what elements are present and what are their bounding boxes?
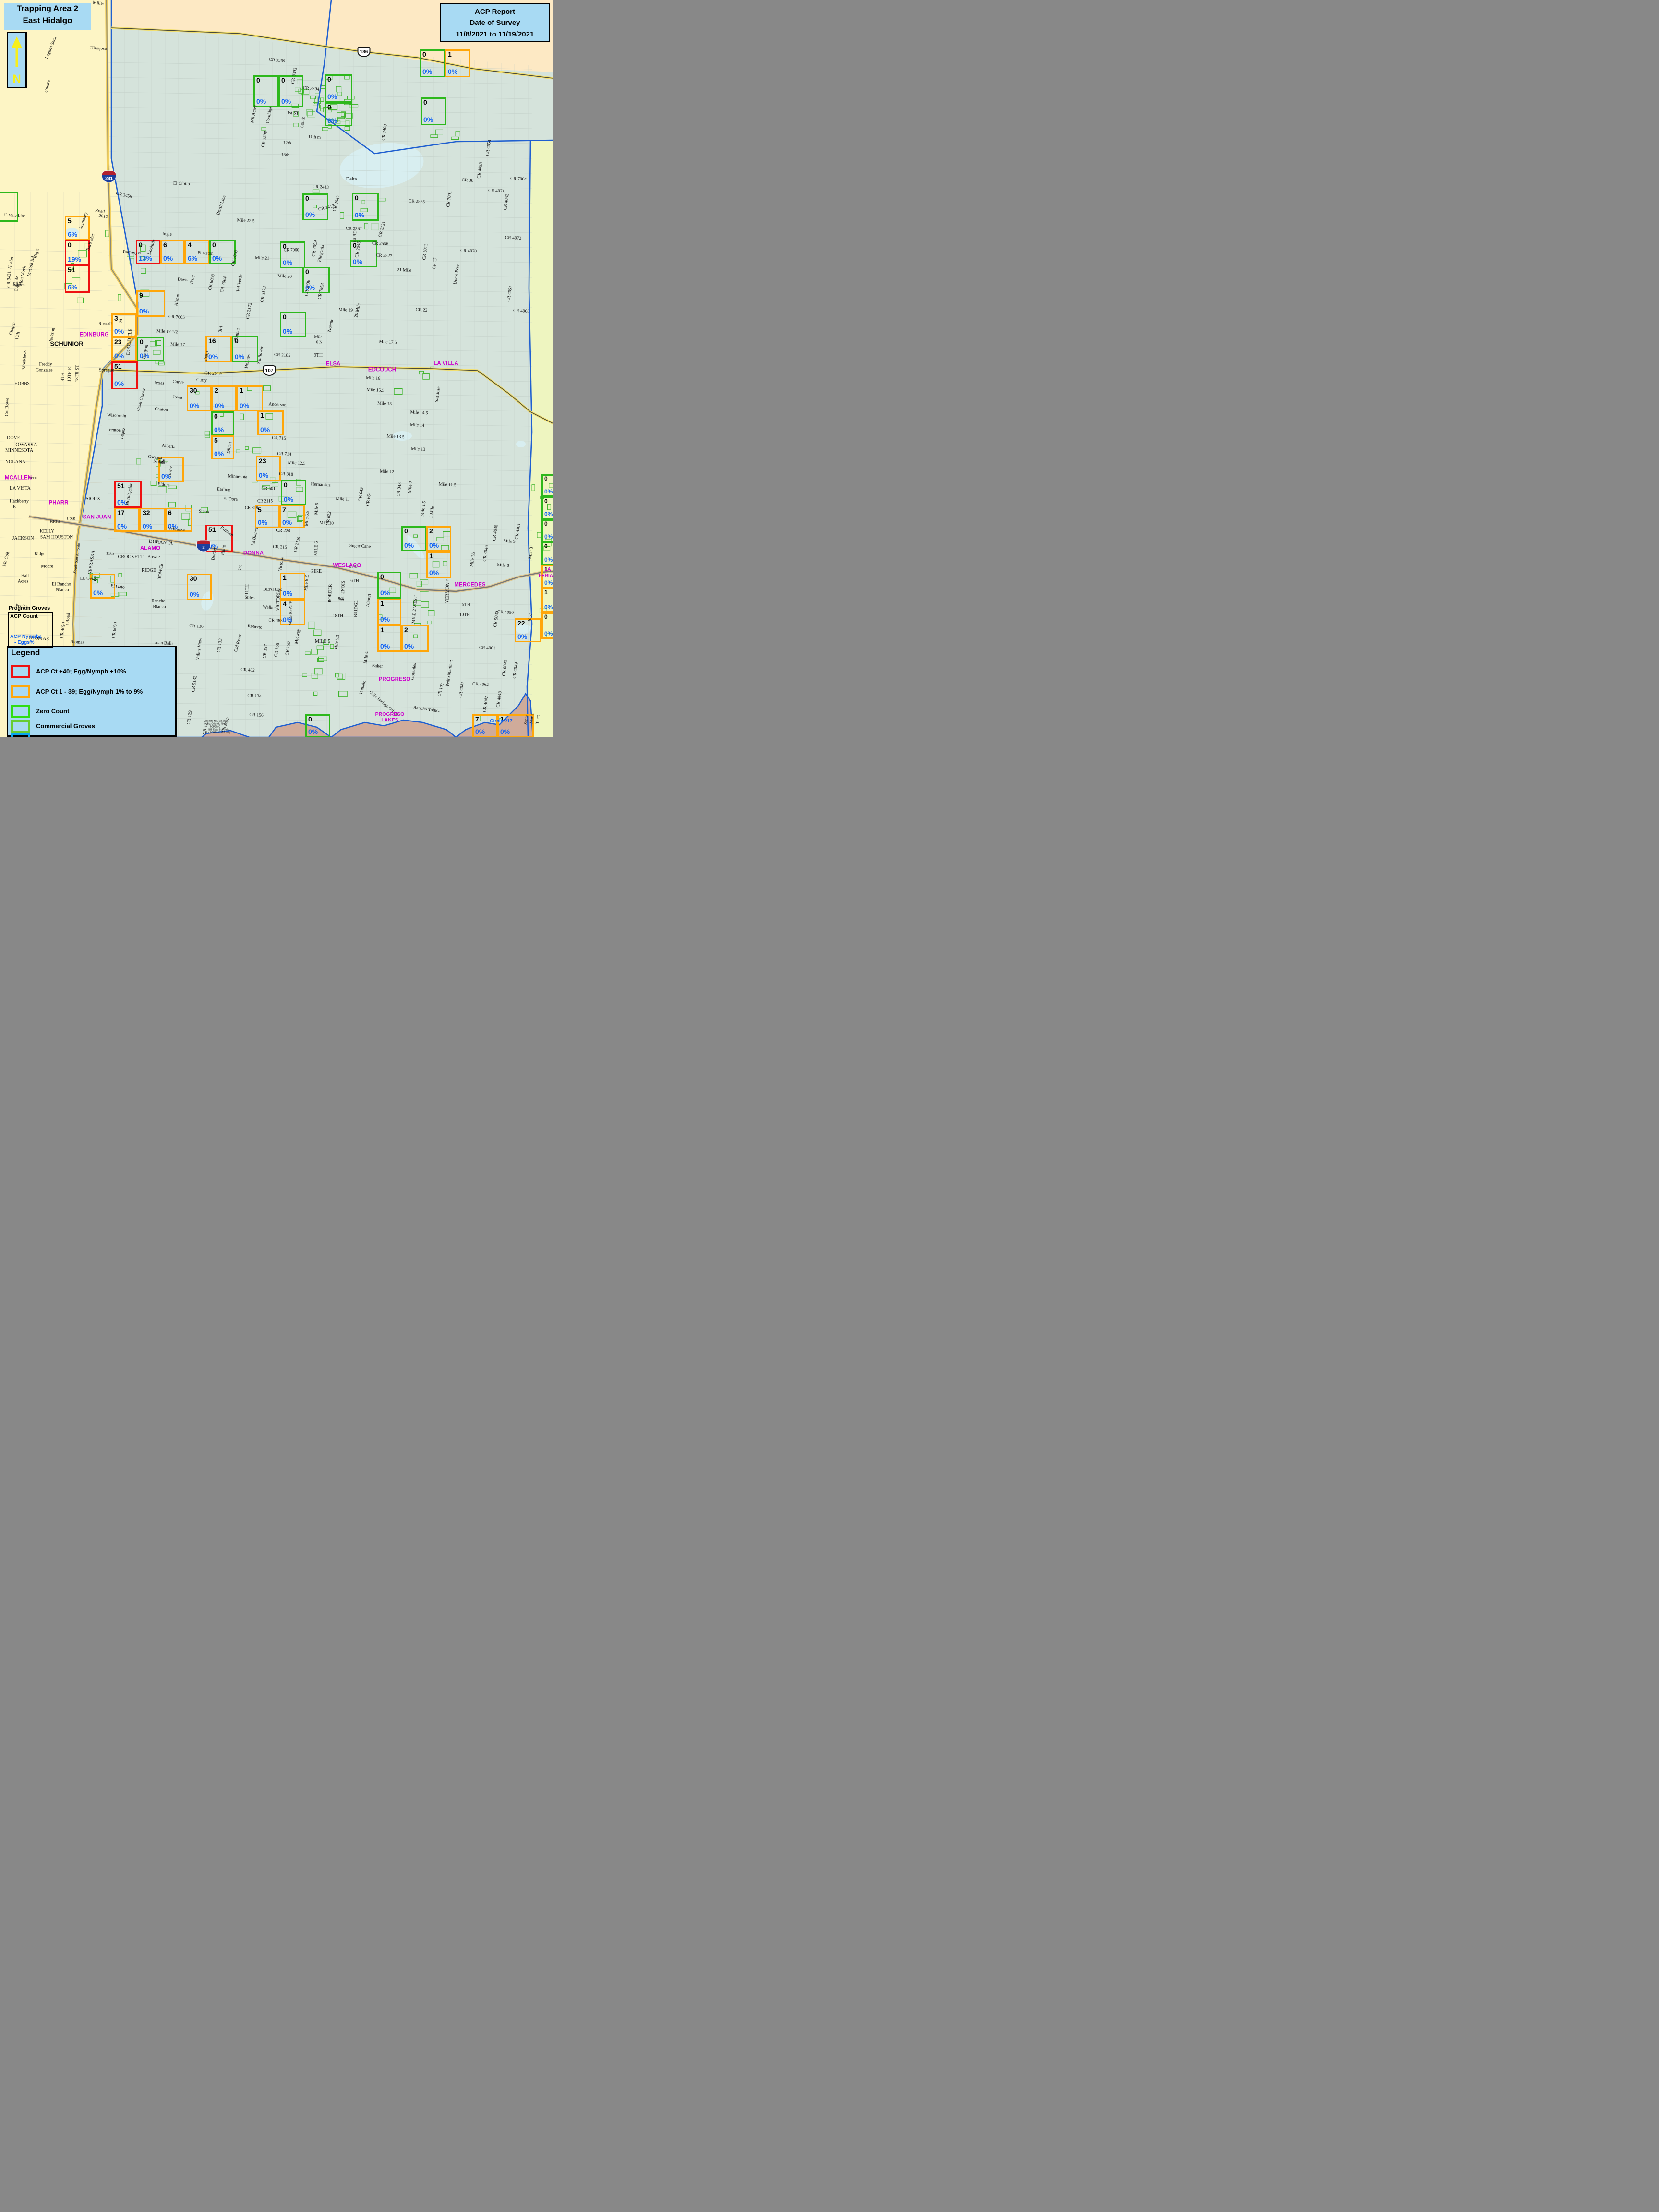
egg-nymph-percent: 0% (240, 402, 249, 409)
city-label: WESLACO (333, 563, 361, 569)
egg-nymph-percent: 0% (143, 523, 152, 530)
trap-site-box: 00% (281, 480, 306, 505)
road-label: Earling (217, 488, 230, 493)
egg-nymph-percent: 0% (190, 591, 199, 598)
trap-site-box: 00% (421, 97, 446, 125)
road-label: Pinkston (197, 251, 214, 256)
road-label: BELL (50, 520, 62, 525)
eggs-pct-label: - Eggs% (14, 639, 34, 645)
road-label: El Dora (223, 497, 238, 502)
egg-nymph-percent: 0% (305, 211, 315, 218)
egg-nymph-percent: 0% (544, 534, 553, 540)
trap-site-box: 00% (305, 714, 330, 737)
road-label: Col Rowe (5, 398, 11, 417)
road-label: Rancho (151, 599, 165, 604)
egg-nymph-percent: 0% (163, 255, 173, 262)
road-label: LA VISTA (10, 486, 31, 491)
road-label: Maria (529, 713, 535, 724)
road-label: 21 Mile (397, 268, 411, 273)
road-label: CR 215 (273, 545, 287, 550)
egg-nymph-percent: 0% (355, 212, 364, 219)
legend-label: Route Boundaries (36, 736, 90, 737)
egg-nymph-percent: 0% (256, 98, 266, 105)
road-label: Thomas (69, 640, 84, 646)
egg-nymph-percent: 0% (93, 589, 103, 597)
road-label: Hackberry (10, 499, 29, 504)
road-label: Russell (98, 322, 112, 327)
acp-count: 1 (380, 626, 384, 634)
road-label: JACKSON (12, 536, 34, 541)
road-label: Mile 15 (377, 401, 392, 407)
trap-site-box: 019% (65, 240, 90, 265)
trap-site-box: 30% (111, 313, 137, 337)
acp-count: 0 (423, 99, 427, 106)
trap-site-box: 00% (541, 474, 553, 497)
road-label: Hinojosa (90, 46, 107, 51)
road-label: Moore (41, 565, 53, 569)
egg-nymph-percent: 0% (282, 519, 292, 526)
interstate-shield-icon: 281 (102, 171, 116, 183)
egg-nymph-percent: 6% (68, 284, 77, 291)
acp-count: 17 (117, 509, 125, 517)
acp-count: 4 (283, 601, 287, 608)
legend-title: Legend (11, 648, 40, 658)
road-label: CR 4072 (505, 236, 522, 241)
egg-nymph-percent: 6% (68, 231, 77, 238)
city-label: PROGRESO (375, 712, 405, 717)
north-arrow: N (7, 32, 27, 88)
egg-nymph-percent: 0% (283, 328, 292, 335)
acp-count: 1 (429, 553, 433, 560)
road-label: EL GATO (80, 577, 99, 581)
egg-nymph-percent: 0% (544, 489, 553, 495)
city-label: EDCOUCH (368, 367, 396, 373)
acp-count: 51 (117, 482, 125, 490)
road-label: Stites (244, 596, 255, 601)
egg-nymph-percent: 0% (327, 117, 337, 124)
acp-count: 23 (259, 457, 266, 465)
egg-nymph-percent: 0% (215, 402, 224, 409)
acp-count: 0 (212, 241, 216, 249)
trap-site-box: 10% (541, 588, 553, 613)
road-label: Mile 11.5 (438, 482, 456, 488)
trap-site-box: 10% (377, 625, 401, 652)
trap-site-box: 10% (280, 573, 305, 599)
acp-count: 0 (380, 573, 384, 580)
acp-count: 0 (305, 268, 309, 276)
road-label: CR 4071 (488, 189, 505, 194)
egg-nymph-percent: 0% (544, 604, 553, 611)
road-label: 1st ST (287, 111, 299, 117)
water-body (516, 441, 526, 447)
road-label: 11th (106, 552, 114, 556)
road-label: CR 2185 (274, 353, 291, 358)
egg-nymph-percent: 0% (517, 633, 527, 640)
program-groves-key: ACP Count ACP Nymphs - Eggs% (8, 612, 53, 648)
road-label: Davis (178, 278, 189, 283)
acp-count: 5 (258, 506, 262, 514)
city-label: PROGRESO (379, 677, 410, 683)
acp-count: 0 (422, 51, 426, 58)
egg-nymph-percent: 0% (380, 643, 390, 650)
egg-nymph-percent: 0% (429, 569, 439, 577)
acp-count: 0 (355, 194, 359, 202)
acp-count: 4 (188, 241, 192, 249)
road-label: Baker (372, 664, 383, 670)
trap-site-box: 170% (114, 508, 140, 532)
trap-site-box: 20% (212, 385, 237, 411)
trap-site-box: 50% (255, 505, 279, 528)
acp-count: 0 (544, 476, 548, 482)
legend-label: ACP Ct +40; Egg/Nymph +10% (36, 668, 126, 675)
trap-site-box: 00% (541, 542, 553, 565)
report-subtitle: Date of Survey (441, 17, 549, 28)
road-label: 6 N (316, 340, 323, 345)
report-title: ACP Report (441, 6, 549, 17)
acp-count: 5 (68, 217, 72, 225)
road-label: CR 2556 (372, 241, 389, 247)
trap-site-box: 00% (280, 241, 305, 268)
acp-count: 1 (448, 51, 452, 58)
trap-site-box: 00% (253, 75, 278, 107)
road-label: Acres (18, 579, 28, 584)
road-label: Sprague (99, 368, 114, 373)
legend-swatch (11, 705, 30, 718)
interstate-shield-icon: 2 (196, 540, 211, 552)
road-label: Canton (155, 408, 168, 413)
road-label: MINNESOTA (5, 448, 33, 453)
road-label: Mile 13.5 (386, 434, 404, 440)
legend-label: Zero Count (36, 708, 69, 715)
road-label: 9TH (314, 353, 323, 358)
road-label: VERMONT (445, 579, 451, 603)
trap-site-box: 20% (401, 625, 429, 652)
road-label: 11th m (308, 135, 321, 141)
road-label: 10TH E (68, 367, 73, 382)
egg-nymph-percent: 0% (281, 98, 291, 105)
road-label: 18TH ST (75, 365, 81, 382)
trap-site-box: 320% (140, 508, 165, 532)
road-label: PIKE (311, 569, 322, 574)
trap-site-box: 00% (541, 519, 553, 542)
road-label: CR 715 (272, 436, 286, 441)
city-label: LA (544, 567, 551, 572)
road-label: Mile 17 (170, 342, 185, 348)
road-label: 1st (238, 565, 243, 571)
road-label: 4TH (61, 373, 66, 381)
city-label: EDINBURG (79, 332, 108, 338)
road-label: Mile 16 (366, 376, 380, 381)
egg-nymph-percent: 0% (214, 450, 224, 457)
acp-count: 51 (114, 363, 122, 370)
acp-count: 0 (327, 76, 331, 83)
trap-site-box: 70% (472, 714, 497, 737)
map-canvas: 00%00%00%00%00%10%00%00%00%00%00%00%00%5… (0, 0, 553, 737)
road-label: CR 7004 (510, 177, 527, 182)
trap-site-box: 00% (541, 497, 553, 519)
road-label: Mile 9 (503, 540, 516, 545)
egg-nymph-percent: 0% (284, 496, 293, 503)
report-date-range: 11/8/2021 to 11/19/2021 (441, 29, 549, 40)
acp-count: 0 (256, 77, 260, 84)
map-title: Trapping Area 2 East Hidalgo (4, 3, 91, 30)
egg-nymph-percent: 0% (308, 728, 318, 735)
road-label: Trenton (107, 428, 121, 433)
road-label: Blanco (56, 588, 69, 593)
road-label: CR 482 (240, 668, 255, 673)
acp-count: 9 (139, 292, 143, 299)
road-label: 12th (283, 141, 291, 146)
egg-nymph-percent: 0% (448, 68, 457, 75)
road-label: Mile (314, 335, 322, 339)
road-label: Mile 22.5 (237, 218, 254, 224)
egg-nymph-percent: 0% (423, 116, 433, 123)
city-label: SAN JUAN (83, 515, 111, 520)
road-label: Mile 14 (410, 423, 424, 428)
road-label: Ridge (35, 552, 46, 557)
us-route-shield-icon: 186 (358, 47, 371, 57)
acp-count: 0 (404, 528, 408, 535)
acp-count: 0 (281, 77, 285, 84)
egg-nymph-percent: 6% (188, 255, 197, 262)
trap-site-box: 00% (401, 526, 426, 551)
egg-nymph-percent: 0% (380, 616, 390, 623)
road-label: CR 318 (279, 472, 293, 477)
acp-count: 1 (544, 589, 548, 596)
road-label: Nebraska (168, 527, 185, 532)
road-label: Delta (346, 177, 357, 182)
legend-swatch (11, 720, 30, 733)
egg-nymph-percent: 0% (380, 589, 390, 597)
city-label: LA VILLA (433, 361, 458, 367)
road-label: Hall (21, 574, 29, 578)
legend-swatch (11, 733, 30, 737)
egg-nymph-percent: 0% (117, 523, 127, 530)
acp-count: 7 (282, 506, 286, 514)
road-label: CR 220 (276, 529, 290, 534)
egg-nymph-percent: 0% (212, 255, 222, 262)
trap-site-box: 10% (257, 410, 284, 435)
acp-count: 0 (283, 313, 287, 321)
north-arrow-stem (16, 47, 18, 67)
road-label: CR 4070 (460, 249, 477, 254)
egg-nymph-percent: 0% (258, 519, 267, 526)
road-label: CR 2019 (204, 371, 222, 377)
acp-count: 0 (544, 498, 548, 505)
road-label: CR 156 (249, 713, 264, 718)
credits-text: For TCPDMC use only (205, 732, 230, 734)
road-label: Sioux (199, 510, 210, 515)
road-label: CR 2115 (257, 499, 273, 504)
acp-count: 1 (260, 412, 264, 419)
acp-count: 6 (168, 509, 172, 517)
acp-count: 51 (208, 526, 216, 533)
city-label: MERCEDES (454, 582, 485, 588)
road-label: Santa (524, 715, 529, 725)
north-label: N (8, 72, 25, 86)
acp-count: 22 (517, 620, 525, 627)
egg-nymph-percent: 0% (139, 308, 149, 315)
egg-nymph-percent: 0% (353, 258, 362, 265)
road-label: M (119, 319, 123, 323)
road-label: WESTGATE (289, 601, 294, 625)
trap-site-box: 00% (280, 312, 306, 337)
city-label: PHARR (49, 500, 69, 506)
egg-nymph-percent: 0% (214, 426, 224, 433)
road-label: OWASSA (15, 443, 37, 448)
trap-site-box: 10% (445, 49, 470, 77)
trap-site-box: 00% (541, 613, 553, 639)
egg-nymph-percent: 0% (404, 643, 414, 650)
road-label: CR 22 (415, 308, 427, 313)
acp-count: 7 (475, 716, 479, 723)
egg-nymph-percent: 0% (404, 542, 414, 549)
road-label: BORDER (328, 584, 334, 603)
road-label: Bowie (147, 555, 160, 560)
city-label: MCALLEN (5, 475, 32, 481)
egg-nymph-percent: 0% (475, 728, 485, 735)
acp-count: 51 (68, 266, 75, 274)
trap-site-box: 00% (325, 74, 352, 102)
road-label: Tract (535, 715, 541, 724)
egg-nymph-percent: 0% (260, 426, 270, 433)
egg-nymph-percent: 0% (429, 542, 439, 549)
trap-site-box: 00% (377, 572, 401, 599)
trap-site-box: 00% (325, 102, 352, 126)
egg-nymph-percent: 0% (544, 580, 553, 586)
legend-swatch (11, 665, 30, 678)
road-label: SIOUX (86, 497, 101, 502)
trap-site-box: 00% (211, 411, 234, 435)
road-label: CR 4068 (513, 309, 530, 314)
road-label: Minnesota (228, 474, 248, 480)
road-label: VICTORIA (276, 589, 281, 611)
road-label: BRIDGE (354, 600, 360, 617)
acp-count: 30 (190, 387, 197, 394)
road-label: KELLY (40, 529, 54, 534)
road-label: SCHUNIOR (50, 341, 83, 347)
road-label: CR 3421 (7, 271, 12, 288)
trap-site-box: 510% (111, 361, 138, 389)
road-label: Curry (196, 378, 207, 384)
road-label: MILE 5 (315, 639, 330, 644)
trap-site-box: 10% (237, 385, 263, 411)
trap-site-box: 60% (160, 240, 185, 264)
road-label: Walker (263, 606, 276, 611)
trap-site-box: 10% (426, 551, 451, 578)
road-label: CR 4050 (497, 610, 514, 615)
road-label: Mile 10 (319, 521, 334, 526)
acp-count: 1 (240, 387, 243, 394)
legend-swatch (11, 685, 30, 698)
us-route-shield-icon: 107 (263, 365, 276, 376)
road-label: Mile 14.5 (410, 410, 428, 416)
acp-count: 30 (190, 575, 197, 582)
egg-nymph-percent: 0% (114, 328, 124, 335)
egg-nymph-percent: 0% (190, 402, 199, 409)
legend-label: Commercial Groves (36, 722, 95, 730)
acp-count: 3 (114, 315, 118, 322)
road-label: 18TH (333, 614, 343, 619)
road-label: Texas (154, 381, 164, 386)
road-label: NOLANA (5, 460, 25, 465)
map-title-line1: Trapping Area 2 (4, 3, 91, 15)
road-label: MonMack (23, 350, 28, 370)
egg-nymph-percent: 0% (235, 353, 244, 361)
acp-count: 2 (215, 387, 218, 394)
acp-count: 1 (283, 574, 287, 581)
acp-count: 0 (544, 614, 548, 620)
road-label: 8th (338, 597, 344, 602)
road-label: 10TH (459, 613, 470, 618)
egg-nymph-percent: 0% (283, 590, 292, 597)
road-label: Iowa (173, 396, 182, 400)
road-label: Mile 8 (497, 564, 509, 569)
road-label: CR 7065 (168, 315, 185, 320)
egg-nymph-percent: 0% (544, 557, 553, 563)
trap-site-box: 10% (377, 599, 401, 625)
trap-site-box: 230% (256, 456, 281, 481)
acp-count: 32 (143, 509, 150, 517)
road-label: Mile 12.5 (288, 461, 305, 466)
road-label: HOBBS (14, 382, 30, 386)
road-label: CR 134 (247, 694, 262, 699)
legend-label: ACP Ct 1 - 39; Egg/Nymph 1% to 9% (36, 688, 143, 695)
road-label: CR 136 (189, 624, 204, 629)
road-label: Circle 217 (490, 719, 512, 724)
acp-count: 5 (214, 437, 218, 444)
road-label: Blanco (153, 605, 166, 610)
egg-nymph-percent: 0% (544, 631, 553, 637)
trap-site-box: 160% (205, 336, 232, 362)
trap-site-box: 00% (137, 337, 164, 361)
acp-count-label: ACP Count (10, 613, 38, 619)
legend: Legend ACP Ct +40; Egg/Nymph +10%ACP Ct … (7, 646, 177, 737)
road-label: Ramseyer (123, 250, 141, 255)
acp-count: 6 (163, 241, 167, 249)
trap-site-box: 70% (279, 505, 305, 528)
trap-site-box: 20% (426, 526, 451, 551)
road-label: Anderson (268, 402, 286, 408)
road-label: Mile 12 (380, 469, 394, 475)
road-label: CR 2527 (376, 253, 393, 259)
road-label: Mile 21 (255, 256, 269, 261)
egg-nymph-percent: 0% (500, 728, 510, 735)
road-label: 13th (281, 153, 289, 158)
road-label: El Rancho (52, 582, 71, 587)
acp-count: 0 (214, 413, 218, 420)
acp-count: 0 (284, 481, 288, 489)
egg-nymph-percent: 0% (422, 68, 432, 75)
road-label: MILE 6 (314, 541, 320, 556)
road-label: CR 4062 (472, 682, 489, 687)
road-label: E (13, 505, 16, 510)
city-label: DONNA (243, 551, 264, 556)
road-label: CR 714 (277, 452, 291, 457)
egg-nymph-percent: 0% (283, 259, 292, 266)
city-label: FERIA (539, 574, 553, 578)
road-label: CR 483 (268, 618, 283, 624)
road-label: RIDGE (142, 568, 156, 573)
road-label: Mile 20 (277, 274, 292, 279)
acp-count: 2 (404, 626, 408, 634)
trap-site-box: 300% (187, 385, 212, 411)
road-label: Freddy (39, 362, 52, 367)
acp-count: 0 (140, 338, 144, 346)
report-box: ACP Report Date of Survey 11/8/2021 to 1… (440, 3, 550, 42)
acp-count: 0 (305, 195, 309, 202)
road-label: CR 38 (461, 179, 473, 184)
